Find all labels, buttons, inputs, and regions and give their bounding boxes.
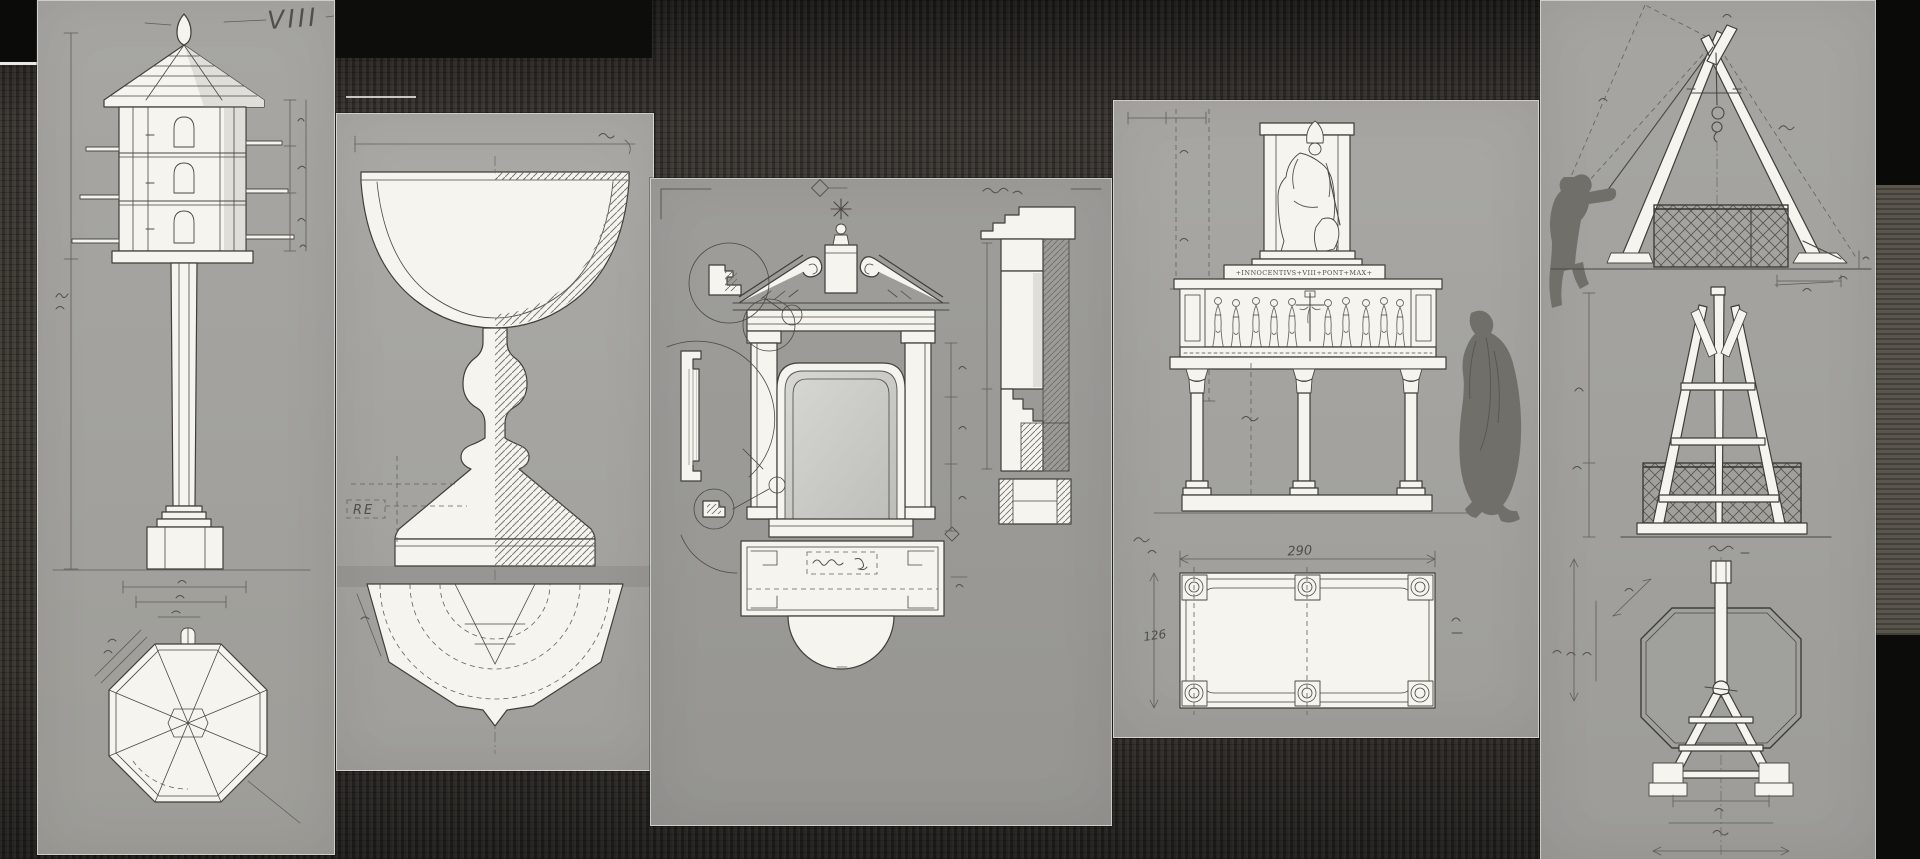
monument-drawing: +INNOCENTIVS+VIII+PONT+MAX+ (1114, 101, 1538, 737)
sheet-chalice: RE (336, 113, 654, 771)
black-patch-top-left (0, 0, 36, 62)
dovecote-post (53, 251, 310, 570)
inscription-text: +INNOCENTIVS+VIII+PONT+MAX+ (1236, 269, 1373, 277)
plate-number: VIII (224, 2, 334, 35)
plate-number-label: VIII (266, 2, 319, 35)
black-patch-above-chalice (336, 0, 652, 58)
column (1397, 369, 1425, 495)
dovecote-finial (145, 14, 191, 45)
dovecote-plan (95, 628, 300, 823)
trestle-tower (1573, 277, 1847, 554)
sheet-aedicule (650, 178, 1112, 826)
woven-strip-right (1874, 185, 1920, 635)
black-strip-top-right (1874, 0, 1920, 185)
worker-silhouette (1549, 174, 1616, 308)
relief-chest (1170, 279, 1446, 369)
entablature (747, 310, 935, 331)
plan-width-dim: 290 (1287, 543, 1313, 559)
pope-statue (1252, 121, 1362, 265)
monument-plan: 290 126 (1142, 543, 1462, 715)
sheet-monument: +INNOCENTIVS+VIII+PONT+MAX+ (1113, 100, 1539, 738)
right-dimension-chain (284, 100, 306, 251)
chalice-drawing: RE (337, 114, 653, 770)
left-dimension-chain (56, 33, 78, 569)
column (1183, 369, 1211, 495)
chalice-elevation (361, 172, 629, 566)
colonnade (1154, 363, 1474, 513)
section-drawing (981, 188, 1075, 524)
aedicule-plan (741, 527, 967, 669)
aedicule-drawing (651, 179, 1111, 825)
dovecote-body (119, 107, 246, 251)
sheet-rigging (1540, 0, 1876, 859)
black-strip-bottom-right (1874, 635, 1920, 859)
lattice-cage (1654, 205, 1788, 267)
rig-plan (1553, 557, 1801, 856)
section-dimension-chain (982, 243, 992, 469)
sheet-dovecote: VIII (37, 0, 335, 855)
monk-silhouette (1459, 311, 1521, 523)
sill (769, 519, 913, 537)
inscription-band: +INNOCENTIVS+VIII+PONT+MAX+ (1224, 265, 1385, 279)
dovecote-drawing: VIII (38, 1, 334, 854)
tower-note (1709, 546, 1749, 553)
foot-development-plan (357, 584, 623, 726)
aframe-hoist (1549, 5, 1871, 308)
top-dimension (355, 134, 635, 155)
column (1290, 369, 1318, 495)
cross-finial (812, 180, 851, 245)
dovecote-roof (104, 45, 264, 107)
re-label: RE (353, 503, 374, 518)
elevation-dimension-chain (945, 343, 966, 531)
base-dimensions (123, 581, 246, 618)
white-tear-mark-chalice (346, 96, 416, 98)
plan-side-dim: 126 (1142, 627, 1167, 644)
drawing-collage: VIII (0, 0, 1920, 859)
niche (777, 363, 905, 519)
rigging-drawing (1541, 1, 1875, 859)
